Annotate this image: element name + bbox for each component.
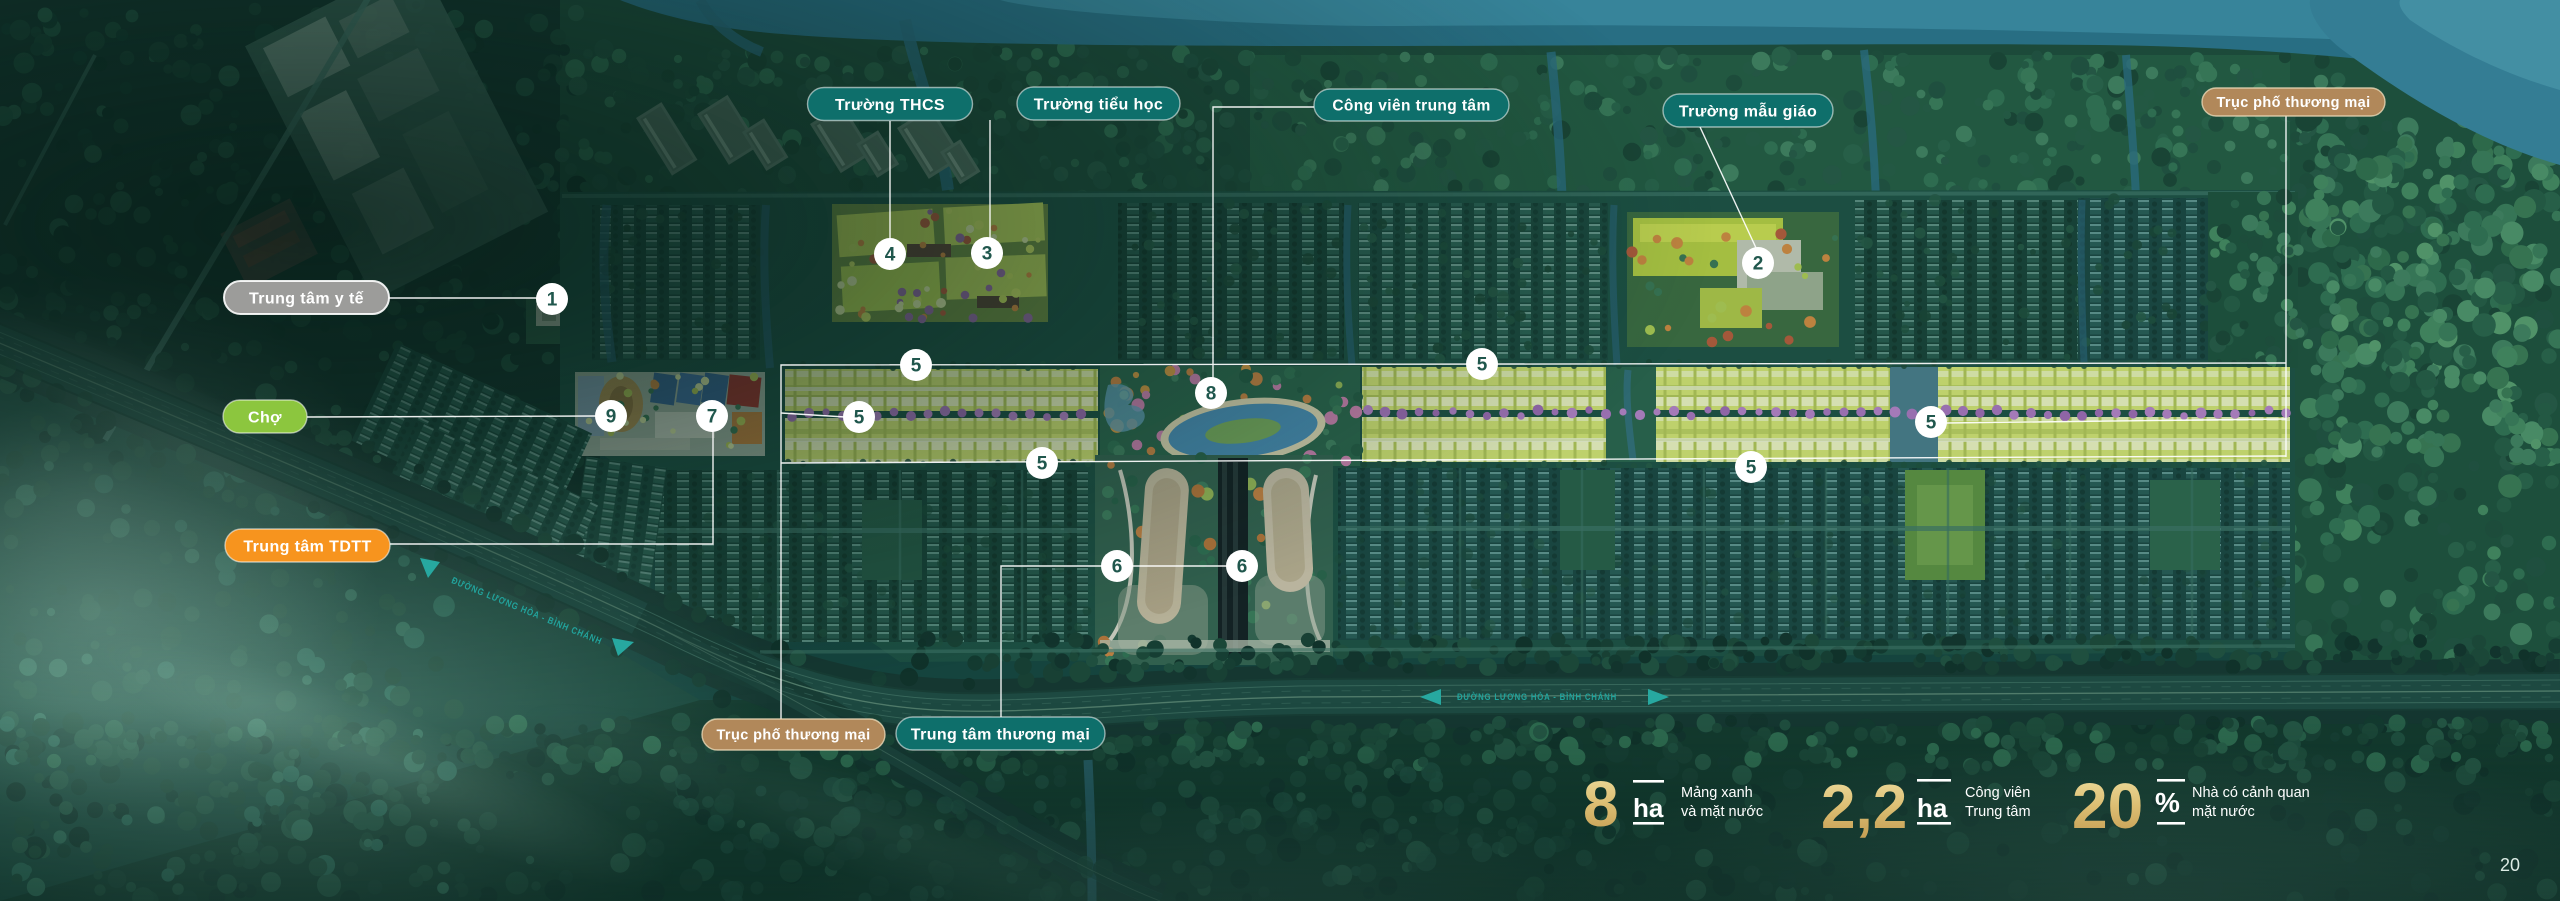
svg-text:5: 5 — [1477, 355, 1488, 376]
svg-text:ĐƯỜNG LƯƠNG HÒA - BÌNH CHÁNH: ĐƯỜNG LƯƠNG HÒA - BÌNH CHÁNH — [1457, 691, 1617, 703]
svg-text:và mặt nước: và mặt nước — [1681, 804, 1763, 820]
svg-text:20: 20 — [2500, 855, 2520, 875]
svg-text:Công viên trung tâm: Công viên trung tâm — [1332, 98, 1490, 115]
svg-text:Trường THCS: Trường THCS — [835, 97, 945, 114]
svg-text:ha: ha — [1917, 793, 1948, 823]
svg-text:6: 6 — [1237, 557, 1248, 578]
svg-text:5: 5 — [854, 408, 865, 429]
svg-text:2,2: 2,2 — [1821, 773, 1907, 842]
svg-text:4: 4 — [885, 245, 896, 266]
svg-text:9: 9 — [606, 407, 617, 428]
svg-text:Trường mẫu giáo: Trường mẫu giáo — [1679, 101, 1817, 120]
svg-text:Trục phố thương mại: Trục phố thương mại — [2216, 95, 2370, 111]
svg-text:Công viên: Công viên — [1965, 785, 2030, 801]
svg-text:6: 6 — [1112, 557, 1123, 578]
svg-text:ha: ha — [1633, 793, 1664, 823]
svg-text:5: 5 — [911, 356, 922, 377]
svg-text:5: 5 — [1926, 413, 1937, 434]
svg-text:2: 2 — [1753, 254, 1764, 275]
svg-text:3: 3 — [982, 244, 993, 265]
svg-text:Trung tâm thương mại: Trung tâm thương mại — [911, 726, 1090, 743]
svg-text:5: 5 — [1037, 454, 1048, 475]
svg-text:Nhà có cảnh quan: Nhà có cảnh quan — [2192, 785, 2310, 801]
svg-text:Mảng xanh: Mảng xanh — [1681, 785, 1753, 801]
svg-text:Chợ: Chợ — [248, 409, 282, 426]
svg-text:Trung tâm TDTT: Trung tâm TDTT — [243, 538, 371, 555]
svg-text:%: % — [2155, 787, 2180, 818]
svg-text:7: 7 — [707, 407, 718, 428]
svg-text:Trung tâm: Trung tâm — [1965, 804, 2031, 820]
svg-text:20: 20 — [2072, 770, 2143, 842]
svg-text:mặt nước: mặt nước — [2192, 804, 2255, 820]
svg-text:5: 5 — [1746, 458, 1757, 479]
svg-text:Trung tâm y tế: Trung tâm y tế — [249, 290, 364, 307]
svg-text:1: 1 — [547, 290, 558, 311]
svg-text:Trường tiểu học: Trường tiểu học — [1034, 95, 1163, 113]
svg-text:8: 8 — [1583, 768, 1619, 840]
svg-text:8: 8 — [1206, 384, 1217, 405]
svg-text:Trục phố thương mại: Trục phố thương mại — [716, 728, 870, 744]
